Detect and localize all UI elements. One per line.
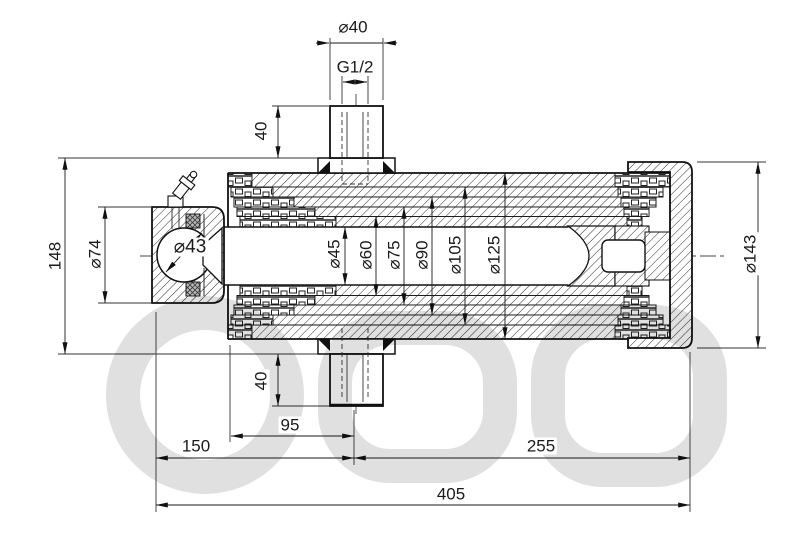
dim-stage-125: ⌀125	[486, 234, 503, 277]
seal-retainer-bottom	[186, 282, 200, 296]
seal-retainer-top	[186, 214, 200, 228]
dim-cap-diameter: ⌀143	[742, 233, 759, 276]
dim-stage-45: ⌀45	[326, 237, 343, 270]
dim-barrel-length: 255	[525, 438, 557, 455]
drawing-linework	[0, 0, 800, 550]
dim-overall-length: 405	[435, 486, 467, 503]
technical-drawing-canvas: ⌀40 G1/2 40 148 ⌀74 ⌀43 ⌀45 ⌀60 ⌀75 ⌀90 …	[0, 0, 800, 550]
dim-port-thread: G1/2	[335, 59, 376, 76]
dim-ball-diameter: ⌀43	[172, 238, 209, 257]
dim-stage-105: ⌀105	[447, 234, 464, 277]
dim-port-offset: 95	[279, 417, 302, 434]
dim-eye-bore: ⌀74	[87, 237, 104, 270]
dim-port-height-top: 40	[253, 120, 270, 143]
dim-port-diameter: ⌀40	[336, 19, 369, 36]
dim-stage-60: ⌀60	[358, 238, 375, 271]
dim-stage-75: ⌀75	[386, 238, 403, 271]
dim-port-height-bottom: 40	[253, 370, 270, 393]
dim-mount-length: 150	[180, 438, 212, 455]
grease-fitting	[168, 167, 201, 207]
dim-overall-height: 148	[47, 240, 64, 272]
bottom-port	[318, 328, 395, 406]
dim-stage-90: ⌀90	[414, 238, 431, 271]
top-port	[318, 106, 395, 184]
